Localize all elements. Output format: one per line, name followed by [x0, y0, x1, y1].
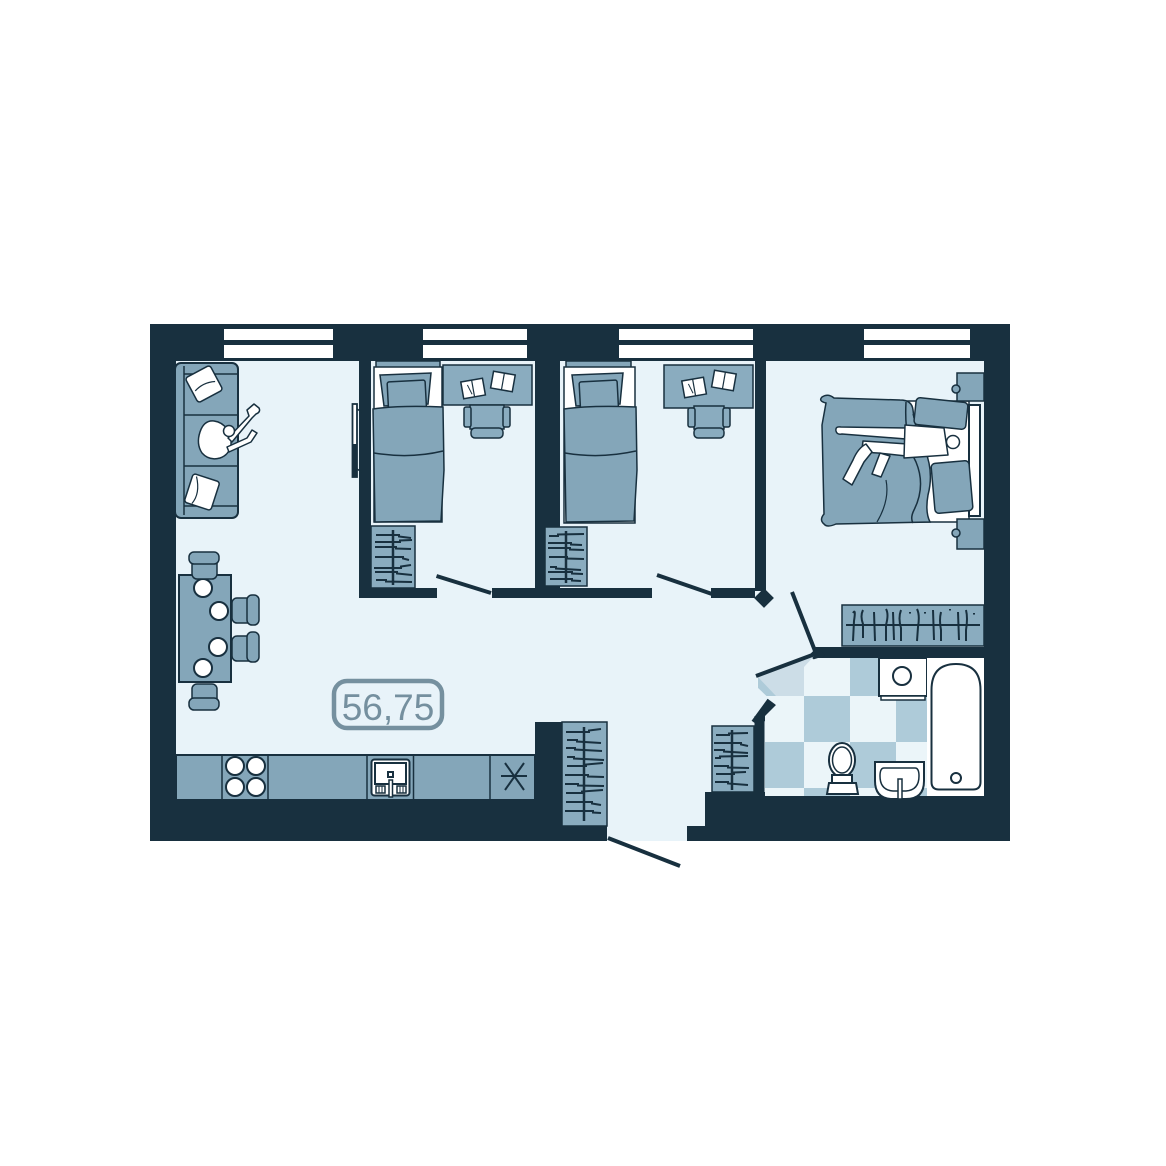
- svg-text:56,75: 56,75: [342, 687, 435, 728]
